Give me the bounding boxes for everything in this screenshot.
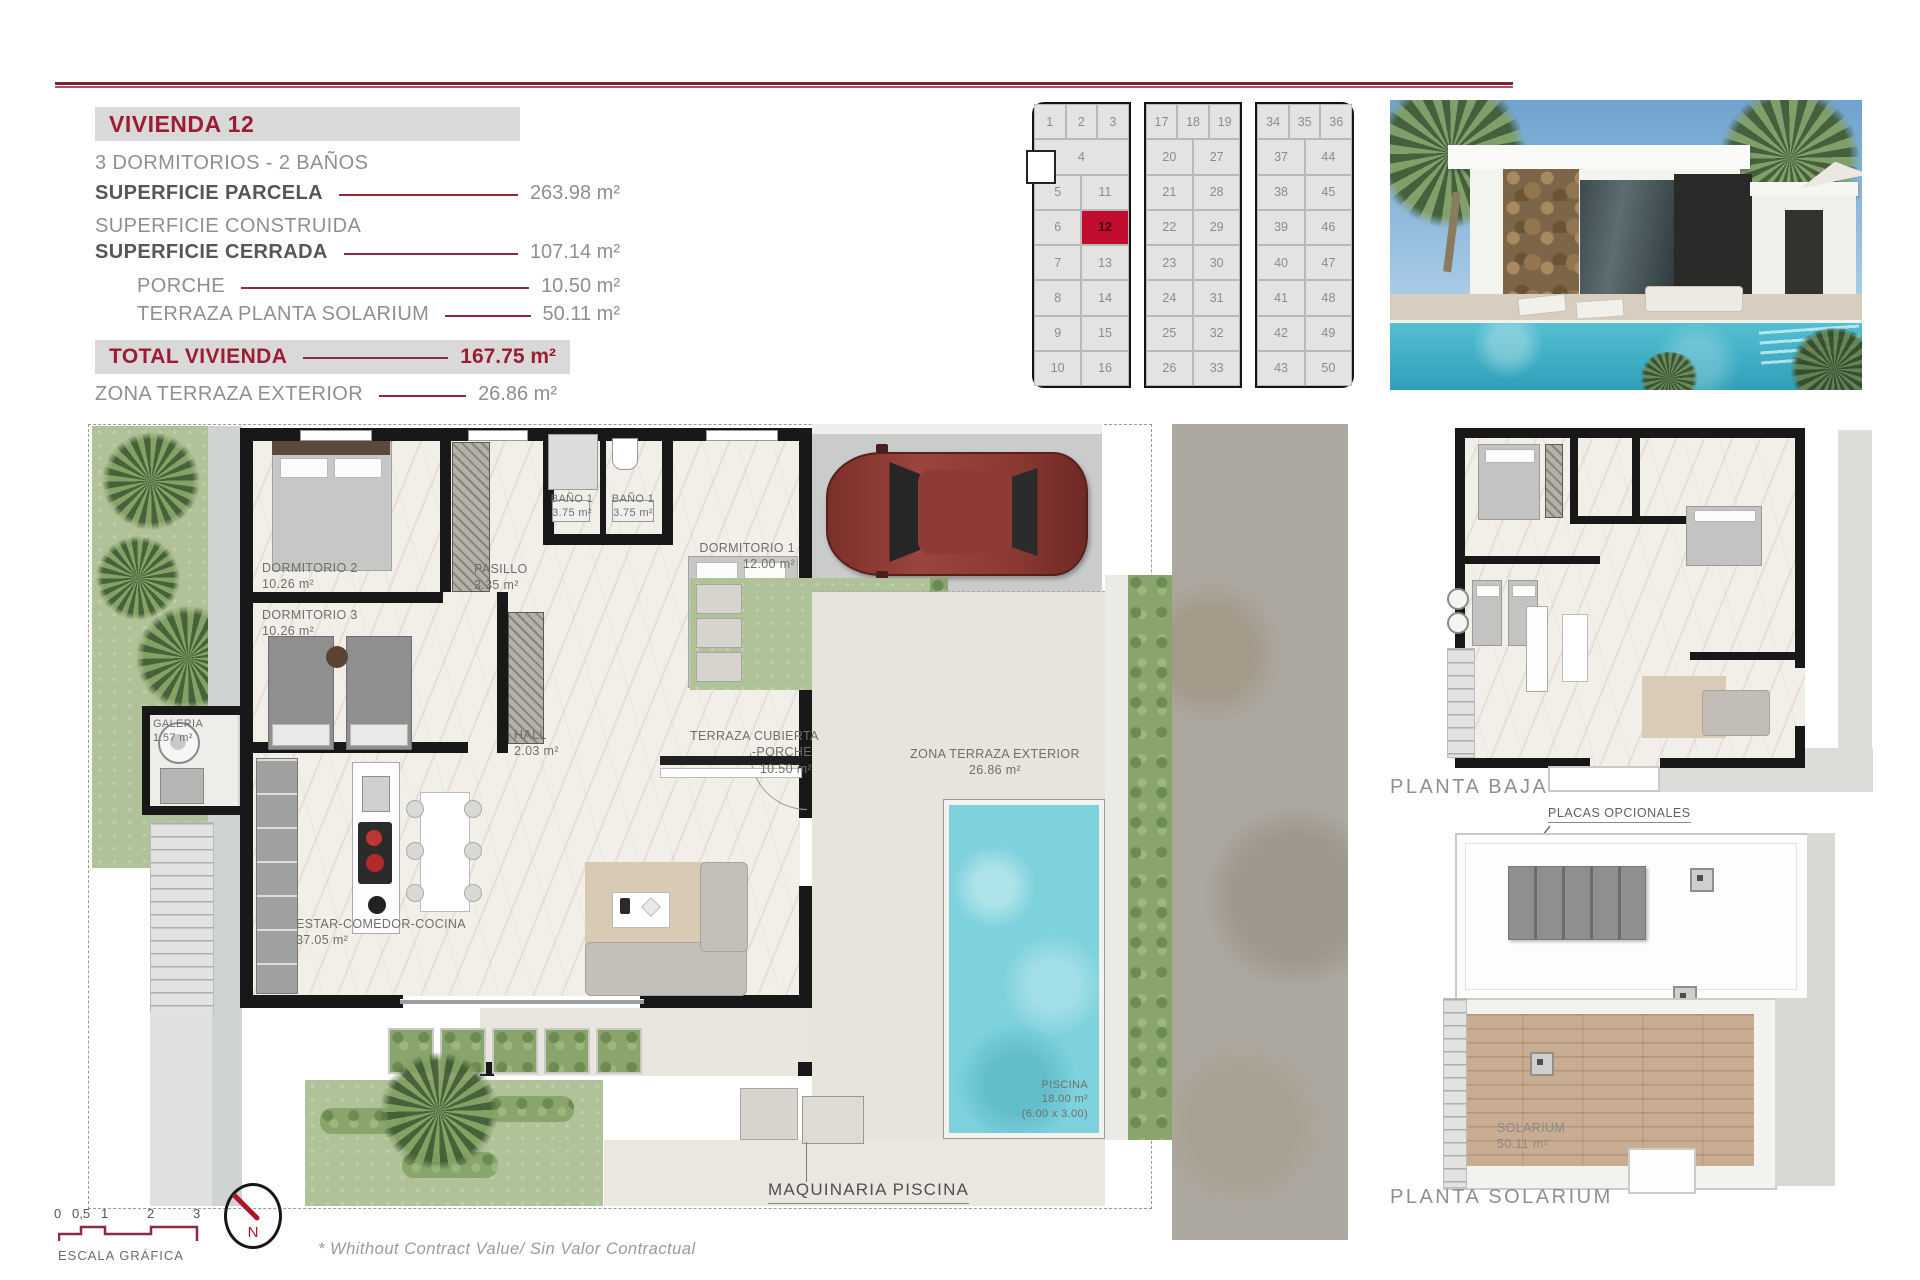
washing-machine-icon xyxy=(1447,588,1469,610)
room-area: 18.00 m² xyxy=(980,1092,1088,1106)
window xyxy=(468,430,528,441)
room-label-estar: ESTAR-COMEDOR-COCINA 37.05 m² xyxy=(296,916,466,949)
room-area: 3.75 m² xyxy=(543,506,601,520)
washing-machine-icon xyxy=(1447,612,1469,634)
room-area: 3.35 m² xyxy=(474,577,528,593)
car-mirror xyxy=(876,444,888,453)
step-pad xyxy=(696,652,742,682)
room-label-dormitorio2: DORMITORIO 2 10.26 m² xyxy=(262,560,358,593)
leader-line xyxy=(303,357,448,359)
wall xyxy=(240,995,403,1008)
room-label-hall: HALL 2.03 m² xyxy=(514,727,559,760)
laundry-unit xyxy=(160,768,204,804)
plot-cell-1: 1 xyxy=(1034,104,1066,139)
site-row: 814 xyxy=(1034,280,1129,315)
machine-box xyxy=(802,1096,864,1144)
site-row: 2532 xyxy=(1146,316,1241,351)
wardrobe-icon xyxy=(1545,444,1563,518)
room-label-galeria: GALERIA 1.57 m² xyxy=(153,717,203,746)
site-row: 2633 xyxy=(1146,351,1241,386)
wall xyxy=(142,706,150,815)
top-rule xyxy=(55,82,1513,85)
sliding-door xyxy=(400,999,644,1004)
scale-caption: ESCALA GRÁFICA xyxy=(58,1248,184,1263)
site-row: 2027 xyxy=(1146,139,1241,174)
room-area: 1.57 m² xyxy=(153,731,203,745)
wall xyxy=(253,592,443,603)
glass-door xyxy=(1580,180,1674,295)
planter-box xyxy=(544,1028,590,1074)
window xyxy=(300,430,372,441)
plot-cell-17: 17 xyxy=(1146,104,1178,139)
scale-tick: 2 xyxy=(147,1206,154,1221)
plot-cell-6: 6 xyxy=(1034,210,1081,245)
room-area: (6.00 x 3.00) xyxy=(980,1107,1088,1121)
room-name: TERRAZA CUBIERTA xyxy=(690,728,812,744)
plot-cell-35: 35 xyxy=(1289,104,1321,139)
plot-cell-32: 32 xyxy=(1193,316,1240,351)
kitchen-island xyxy=(1526,606,1548,692)
room-label-zona-terraza: ZONA TERRAZA EXTERIOR 26.86 m² xyxy=(900,746,1090,779)
room-name: PASILLO xyxy=(474,561,528,577)
plot-cell-9: 9 xyxy=(1034,316,1081,351)
site-row: 343536 xyxy=(1257,104,1352,139)
wall xyxy=(148,706,240,715)
dark-wall xyxy=(1674,174,1752,295)
wall xyxy=(497,592,508,753)
plot-cell-12: 12 xyxy=(1081,210,1128,245)
window xyxy=(706,430,778,441)
sofa-icon xyxy=(1702,690,1770,736)
spec-label: ZONA TERRAZA EXTERIOR xyxy=(95,383,363,406)
photo-terrace xyxy=(1390,294,1862,322)
wardrobe-icon xyxy=(508,612,544,744)
planter-box xyxy=(492,1028,538,1074)
chair-icon xyxy=(406,884,424,902)
spec-row-cerrada: SUPERFICIE CERRADA 107.14 m² xyxy=(95,241,620,264)
site-row: 123 xyxy=(1034,104,1129,139)
plot-cell-44: 44 xyxy=(1305,139,1352,174)
spec-label: PORCHE xyxy=(137,275,225,298)
spec-row-zona-terraza: ZONA TERRAZA EXTERIOR 26.86 m² xyxy=(95,383,557,406)
plot-cell-37: 37 xyxy=(1257,139,1304,174)
plot-cell-2: 2 xyxy=(1066,104,1098,139)
maquinaria-label: MAQUINARIA PISCINA xyxy=(768,1180,969,1204)
pillow xyxy=(334,458,382,478)
site-row: 713 xyxy=(1034,245,1129,280)
leader-line xyxy=(339,194,518,196)
site-row: 2128 xyxy=(1146,175,1241,210)
chair-icon xyxy=(406,842,424,860)
plot-cell-45: 45 xyxy=(1305,175,1352,210)
wall xyxy=(1570,428,1578,524)
room-label-bano1b: BAÑO 1 3.75 m² xyxy=(604,492,662,521)
room-area: 10.50 m² xyxy=(690,761,812,777)
contract-note: * Whithout Contract Value/ Sin Valor Con… xyxy=(318,1240,696,1259)
hob-burner xyxy=(366,830,382,846)
spec-value: 26.86 m² xyxy=(478,383,557,406)
site-row: 4047 xyxy=(1257,245,1352,280)
palm-tree-icon xyxy=(380,1052,498,1170)
plot-cell-49: 49 xyxy=(1305,316,1352,351)
plot-cell-24: 24 xyxy=(1146,280,1193,315)
site-row: 915 xyxy=(1034,316,1129,351)
dining-table xyxy=(1562,614,1588,682)
car-roof xyxy=(918,470,1014,554)
scale-tick: 0 xyxy=(54,1206,61,1221)
hedge-column xyxy=(1128,575,1172,1140)
plot-cell-7: 7 xyxy=(1034,245,1081,280)
single-bed-foot xyxy=(350,724,408,746)
plot-cell-40: 40 xyxy=(1257,245,1304,280)
sofa-icon xyxy=(700,862,748,952)
total-band: TOTAL VIVIENDA 167.75 m² xyxy=(95,340,570,374)
plot-cell-38: 38 xyxy=(1257,175,1304,210)
plot-cell-20: 20 xyxy=(1146,139,1193,174)
plot-cell-31: 31 xyxy=(1193,280,1240,315)
leader-line xyxy=(241,287,529,289)
spec-label: SUPERFICIE CERRADA xyxy=(95,241,328,264)
stone-wall xyxy=(1503,169,1579,295)
single-bed-icon xyxy=(1472,580,1502,646)
plot-cell-13: 13 xyxy=(1081,245,1128,280)
room-label-dormitorio3: DORMITORIO 3 10.26 m² xyxy=(262,607,358,640)
plot-cell-15: 15 xyxy=(1081,316,1128,351)
plot-cell-28: 28 xyxy=(1193,175,1240,210)
dining-table xyxy=(420,792,470,912)
room-area: 10.26 m² xyxy=(262,576,358,592)
sun-lounger xyxy=(1575,298,1624,319)
site-row: 3845 xyxy=(1257,175,1352,210)
side-stairs xyxy=(150,822,214,1014)
scale-tick: 0,5 xyxy=(72,1206,90,1221)
stairs xyxy=(1447,648,1475,758)
room-name: ESTAR-COMEDOR-COCINA xyxy=(296,916,466,932)
plot-cell-11: 11 xyxy=(1081,175,1128,210)
step-pad xyxy=(696,618,742,648)
wall xyxy=(1465,556,1600,564)
site-row: 3744 xyxy=(1257,139,1352,174)
room-name: -PORCHE xyxy=(690,744,812,760)
room-name: HALL xyxy=(514,727,559,743)
plot-cell-3: 3 xyxy=(1097,104,1129,139)
step-pad xyxy=(696,584,742,614)
solar-panels xyxy=(1508,866,1646,940)
side-path xyxy=(208,426,242,1206)
pantry-column xyxy=(256,758,298,994)
plot-cell-19: 19 xyxy=(1209,104,1241,139)
plot-cell-26: 26 xyxy=(1146,351,1193,386)
site-row: 1016 xyxy=(1034,351,1129,386)
chair-icon xyxy=(464,800,482,818)
side-path-lower xyxy=(150,1012,212,1206)
plot-cell-43: 43 xyxy=(1257,351,1304,386)
bed-icon xyxy=(1478,444,1540,520)
wall xyxy=(1690,652,1805,660)
room-label-bano1a: BAÑO 1 3.75 m² xyxy=(543,492,601,521)
outdoor-sofa xyxy=(1645,286,1743,312)
stairs xyxy=(1443,998,1467,1188)
spec-row-terraza-solarium: TERRAZA PLANTA SOLARIUM 50.11 m² xyxy=(95,303,620,326)
car-windshield xyxy=(884,462,920,562)
site-row: 2229 xyxy=(1146,210,1241,245)
bed-icon xyxy=(1686,506,1762,566)
room-label-dormitorio1: DORMITORIO 1 12.00 m² xyxy=(640,540,795,573)
plot-cell-18: 18 xyxy=(1177,104,1209,139)
site-row: 2330 xyxy=(1146,245,1241,280)
wall xyxy=(662,428,673,545)
plot-cell-41: 41 xyxy=(1257,280,1304,315)
site-row: 612 xyxy=(1034,210,1129,245)
room-area: 3.75 m² xyxy=(604,506,662,520)
chair-icon xyxy=(464,884,482,902)
spec-row-construida: SUPERFICIE CONSTRUIDA xyxy=(95,215,620,238)
nightstand-icon xyxy=(326,646,348,668)
pillow xyxy=(280,458,328,478)
room-label-terraza-cubierta: TERRAZA CUBIERTA -PORCHE 10.50 m² xyxy=(690,728,812,777)
plot-cell-21: 21 xyxy=(1146,175,1193,210)
spec-label: SUPERFICIE PARCELA xyxy=(95,182,323,205)
room-name: BAÑO 1 xyxy=(543,492,601,506)
plot-cell-29: 29 xyxy=(1193,210,1240,245)
room-name: SOLARIUM xyxy=(1497,1120,1565,1136)
toilet-icon xyxy=(612,438,638,470)
plot-cell-33: 33 xyxy=(1193,351,1240,386)
spec-value: 107.14 m² xyxy=(530,241,620,264)
site-grid-entry-box xyxy=(1026,150,1056,184)
villa-photo xyxy=(1390,100,1862,390)
kitchen-sink-icon xyxy=(362,776,390,812)
spec-value: 10.50 m² xyxy=(541,275,620,298)
wall xyxy=(148,806,240,815)
planta-solarium-label: PLANTA SOLARIUM xyxy=(1390,1186,1613,1209)
room-name: BAÑO 1 xyxy=(604,492,662,506)
wall xyxy=(240,428,253,1008)
placas-label: PLACAS OPCIONALES xyxy=(1548,806,1691,823)
planter-box xyxy=(596,1028,642,1074)
palm-tree-icon xyxy=(102,432,200,530)
spec-row-porche: PORCHE 10.50 m² xyxy=(95,275,620,298)
machine-pad xyxy=(740,1088,798,1140)
room-area: 12.00 m² xyxy=(640,556,795,572)
site-block: 12345116127138149151016 xyxy=(1032,102,1131,388)
scale-tick: 3 xyxy=(193,1206,200,1221)
street xyxy=(1172,424,1348,1240)
villa-roof xyxy=(1448,145,1750,169)
spec-subtitle: 3 DORMITORIOS - 2 BAÑOS xyxy=(95,152,368,175)
wall xyxy=(799,886,812,1008)
spec-value: 263.98 m² xyxy=(530,182,620,205)
plot-cell-47: 47 xyxy=(1305,245,1352,280)
plot-cell-16: 16 xyxy=(1081,351,1128,386)
site-row: 171819 xyxy=(1146,104,1241,139)
wall xyxy=(1660,758,1805,768)
plan-sheet: VIVIENDA 12 3 DORMITORIOS - 2 BAÑOS SUPE… xyxy=(0,0,1920,1280)
site-block: 1718192027212822292330243125322633 xyxy=(1144,102,1243,388)
hedge xyxy=(488,1096,574,1122)
north-label: N xyxy=(227,1224,279,1241)
wall xyxy=(1455,428,1805,438)
total-value: 167.75 m² xyxy=(460,345,556,369)
room-label-piscina: PISCINA 18.00 m² (6.00 x 3.00) xyxy=(980,1078,1088,1121)
leader-line xyxy=(445,315,530,317)
plot-cell-39: 39 xyxy=(1257,210,1304,245)
gray-band xyxy=(1838,430,1872,780)
north-arrow: N xyxy=(224,1183,282,1249)
skylight-icon xyxy=(1690,868,1714,892)
site-row: 3946 xyxy=(1257,210,1352,245)
hob-burner xyxy=(366,854,384,872)
room-name: DORMITORIO 3 xyxy=(262,607,358,623)
leader-line xyxy=(344,253,518,255)
site-plan-grid: 1234511612713814915101617181920272128222… xyxy=(1032,102,1354,388)
room-name: DORMITORIO 2 xyxy=(262,560,358,576)
room-area: 50.11 m² xyxy=(1497,1136,1565,1152)
plot-cell-50: 50 xyxy=(1305,351,1352,386)
plot-cell-46: 46 xyxy=(1305,210,1352,245)
gray-band xyxy=(1775,998,1835,1186)
plot-cell-48: 48 xyxy=(1305,280,1352,315)
shower-icon xyxy=(548,434,598,490)
wall xyxy=(1795,428,1805,668)
total-label: TOTAL VIVIENDA xyxy=(109,345,287,369)
neighbor-door xyxy=(1785,210,1823,295)
spec-value: 50.11 m² xyxy=(543,303,620,326)
site-row: 4148 xyxy=(1257,280,1352,315)
single-bed-foot xyxy=(272,724,330,746)
plot-cell-25: 25 xyxy=(1146,316,1193,351)
room-label-solarium: SOLARIUM 50.11 m² xyxy=(1497,1120,1565,1153)
terrace-dash xyxy=(812,591,1105,592)
plot-cell-10: 10 xyxy=(1034,351,1081,386)
chair-icon xyxy=(464,842,482,860)
spec-subtitle-row: 3 DORMITORIOS - 2 BAÑOS xyxy=(95,152,620,175)
room-area: 2.03 m² xyxy=(514,743,559,759)
neighbor-roof xyxy=(1750,182,1858,196)
bed-headboard xyxy=(272,441,390,455)
plot-cell-14: 14 xyxy=(1081,280,1128,315)
room-area: 26.86 m² xyxy=(900,762,1090,778)
room-name: DORMITORIO 1 xyxy=(640,540,795,556)
leader-line xyxy=(379,395,466,397)
walkway xyxy=(1105,575,1128,1140)
skylight-icon xyxy=(1530,1052,1554,1076)
spec-label: SUPERFICIE CONSTRUIDA xyxy=(95,215,361,238)
phone-icon xyxy=(620,898,630,914)
room-area: 37.05 m² xyxy=(296,932,466,948)
plot-cell-23: 23 xyxy=(1146,245,1193,280)
plot-cell-34: 34 xyxy=(1257,104,1289,139)
spec-label: TERRAZA PLANTA SOLARIUM xyxy=(137,303,429,326)
scale-tick: 1 xyxy=(101,1206,108,1221)
planta-baja-label: PLANTA BAJA xyxy=(1390,776,1548,799)
room-name: GALERIA xyxy=(153,717,203,731)
room-name: ZONA TERRAZA EXTERIOR xyxy=(900,746,1090,762)
pot-icon xyxy=(368,896,386,914)
plot-cell-42: 42 xyxy=(1257,316,1304,351)
site-row: 4249 xyxy=(1257,316,1352,351)
mini-porch xyxy=(1548,766,1660,792)
site-block: 3435363744384539464047414842494350 xyxy=(1255,102,1354,388)
chair-icon xyxy=(406,800,424,818)
room-label-pasillo: PASILLO 3.35 m² xyxy=(474,561,528,594)
site-row: 2431 xyxy=(1146,280,1241,315)
scale-bar xyxy=(58,1224,200,1244)
plot-cell-8: 8 xyxy=(1034,280,1081,315)
wall xyxy=(440,440,451,592)
palm-tree-icon xyxy=(96,536,180,620)
plot-cell-36: 36 xyxy=(1320,104,1352,139)
plot-cell-30: 30 xyxy=(1193,245,1240,280)
room-area: 10.26 m² xyxy=(262,623,358,639)
wall xyxy=(1632,428,1640,524)
plot-cell-22: 22 xyxy=(1146,210,1193,245)
room-name: PISCINA xyxy=(980,1078,1088,1092)
top-rule-thin xyxy=(55,86,1513,88)
plot-cell-27: 27 xyxy=(1193,139,1240,174)
porch-post xyxy=(798,1062,812,1076)
spec-row-parcela: SUPERFICIE PARCELA 263.98 m² xyxy=(95,182,620,205)
deck-notch xyxy=(1628,1148,1696,1194)
machine-leader xyxy=(806,1142,807,1182)
site-row: 4350 xyxy=(1257,351,1352,386)
wall xyxy=(640,995,812,1008)
